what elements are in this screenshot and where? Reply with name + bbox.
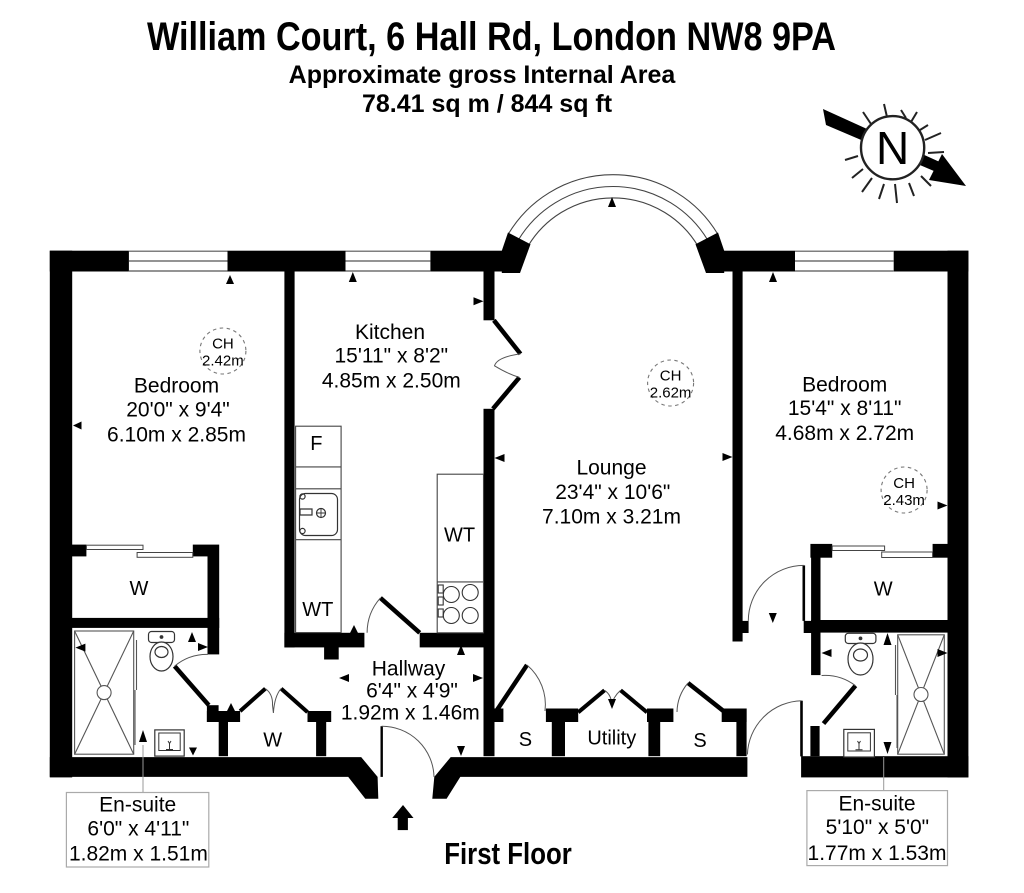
svg-text:CH: CH: [893, 475, 915, 492]
svg-text:William Court, 6 Hall Rd, Lond: William Court, 6 Hall Rd, London NW8 9PA: [147, 15, 836, 59]
svg-text:6'0" x 4'11": 6'0" x 4'11": [87, 818, 189, 841]
svg-text:2.43m: 2.43m: [883, 492, 925, 509]
svg-text:W: W: [263, 730, 282, 752]
svg-text:S: S: [693, 730, 706, 752]
svg-text:CH: CH: [212, 336, 234, 353]
svg-text:78.41 sq m / 844 sq ft: 78.41 sq m / 844 sq ft: [362, 90, 613, 118]
svg-text:15'4" x 8'11": 15'4" x 8'11": [788, 397, 902, 420]
svg-text:En-suite: En-suite: [838, 793, 915, 816]
svg-text:Kitchen: Kitchen: [355, 321, 425, 344]
svg-text:S: S: [519, 729, 532, 751]
svg-text:Lounge: Lounge: [576, 457, 646, 480]
svg-text:15'11" x 8'2": 15'11" x 8'2": [334, 345, 448, 368]
svg-text:6'4" x 4'9": 6'4" x 4'9": [366, 680, 458, 703]
svg-text:W: W: [874, 579, 893, 601]
svg-text:Bedroom: Bedroom: [134, 374, 219, 397]
svg-text:2.62m: 2.62m: [650, 385, 692, 402]
svg-text:6.10m x 2.85m: 6.10m x 2.85m: [107, 423, 246, 446]
svg-text:En-suite: En-suite: [99, 794, 176, 817]
svg-text:CH: CH: [660, 368, 682, 385]
svg-text:Bedroom: Bedroom: [802, 374, 887, 397]
svg-text:Approximate gross Internal Are: Approximate gross Internal Area: [289, 61, 677, 89]
svg-text:1.82m x 1.51m: 1.82m x 1.51m: [69, 843, 208, 866]
svg-text:4.68m x 2.72m: 4.68m x 2.72m: [775, 422, 914, 445]
svg-text:W: W: [130, 578, 149, 600]
svg-text:7.10m x 3.21m: 7.10m x 3.21m: [542, 506, 681, 529]
svg-text:2.42m: 2.42m: [202, 353, 244, 370]
svg-text:4.85m x 2.50m: 4.85m x 2.50m: [322, 370, 461, 393]
svg-text:5'10" x 5'0": 5'10" x 5'0": [826, 816, 930, 839]
svg-text:1.77m x 1.53m: 1.77m x 1.53m: [808, 842, 947, 865]
svg-text:N: N: [876, 122, 909, 174]
svg-text:20'0" x 9'4": 20'0" x 9'4": [126, 398, 230, 421]
svg-text:WT: WT: [302, 599, 333, 621]
svg-text:1.92m x 1.46m: 1.92m x 1.46m: [341, 702, 480, 725]
svg-text:First Floor: First Floor: [444, 836, 572, 871]
svg-text:F: F: [310, 433, 322, 455]
svg-text:23'4" x 10'6": 23'4" x 10'6": [555, 481, 670, 504]
svg-text:WT: WT: [444, 525, 475, 547]
svg-text:Hallway: Hallway: [372, 658, 446, 681]
svg-text:Utility: Utility: [587, 728, 636, 750]
